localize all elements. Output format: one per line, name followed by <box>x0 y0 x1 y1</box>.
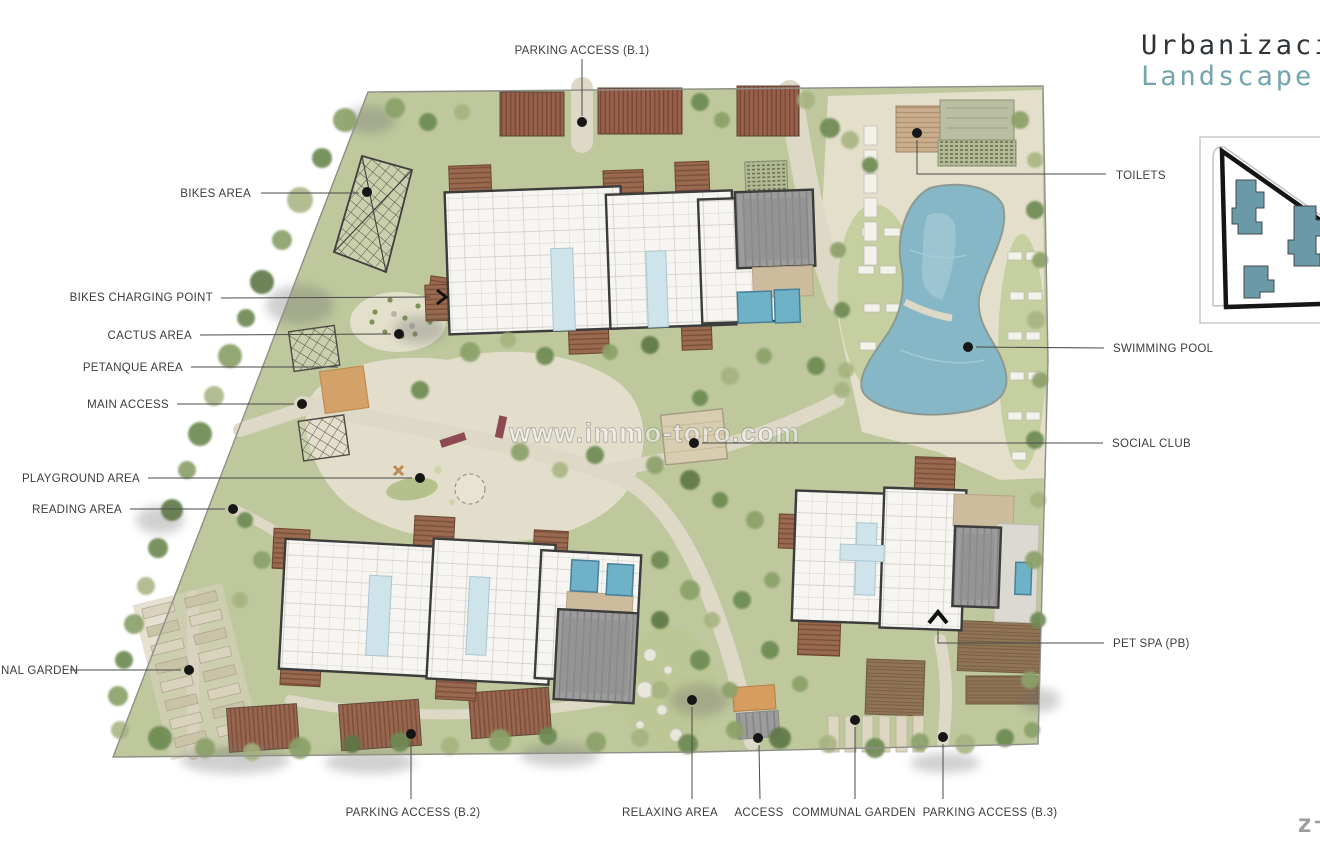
svg-text:BIKES AREA: BIKES AREA <box>180 188 251 200</box>
svg-text:TOILETS: TOILETS <box>1116 170 1166 182</box>
svg-text:CACTUS AREA: CACTUS AREA <box>108 330 192 342</box>
brand-logo: z <box>1297 809 1320 838</box>
plan-subtitle: Landscape <box>1141 61 1314 92</box>
svg-text:PARKING ACCESS (B.1): PARKING ACCESS (B.1) <box>515 45 650 57</box>
key-map <box>1200 137 1320 323</box>
svg-text:PETANQUE AREA: PETANQUE AREA <box>83 362 183 374</box>
parking-strips-north <box>500 86 799 136</box>
svg-text:PLAYGROUND AREA: PLAYGROUND AREA <box>22 473 140 485</box>
svg-text:PARKING ACCESS (B.3): PARKING ACCESS (B.3) <box>923 807 1058 819</box>
svg-text:ACCESS: ACCESS <box>734 807 783 819</box>
svg-text:NAL GARDEN: NAL GARDEN <box>1 665 78 677</box>
svg-text:MAIN ACCESS: MAIN ACCESS <box>87 399 169 411</box>
plan-title: Urbanizaci <box>1141 30 1320 61</box>
svg-text:RELAXING AREA: RELAXING AREA <box>622 807 718 819</box>
svg-text:COMMUNAL GARDEN: COMMUNAL GARDEN <box>792 807 916 819</box>
svg-text:SOCIAL CLUB: SOCIAL CLUB <box>1112 438 1191 450</box>
logo-letter: z <box>1297 809 1312 838</box>
svg-text:PARKING ACCESS (B.2): PARKING ACCESS (B.2) <box>346 807 481 819</box>
site-plan: www.immo-toro.com PARKING ACCESS (B.1) B… <box>0 0 1320 859</box>
svg-text:SWIMMING POOL: SWIMMING POOL <box>1113 343 1214 355</box>
svg-text:BIKES CHARGING POINT: BIKES CHARGING POINT <box>70 292 213 304</box>
svg-text:PET SPA (PB): PET SPA (PB) <box>1113 638 1190 650</box>
landscape-masterplan-page: www.immo-toro.com PARKING ACCESS (B.1) B… <box>0 0 1320 859</box>
svg-text:READING AREA: READING AREA <box>32 504 122 516</box>
